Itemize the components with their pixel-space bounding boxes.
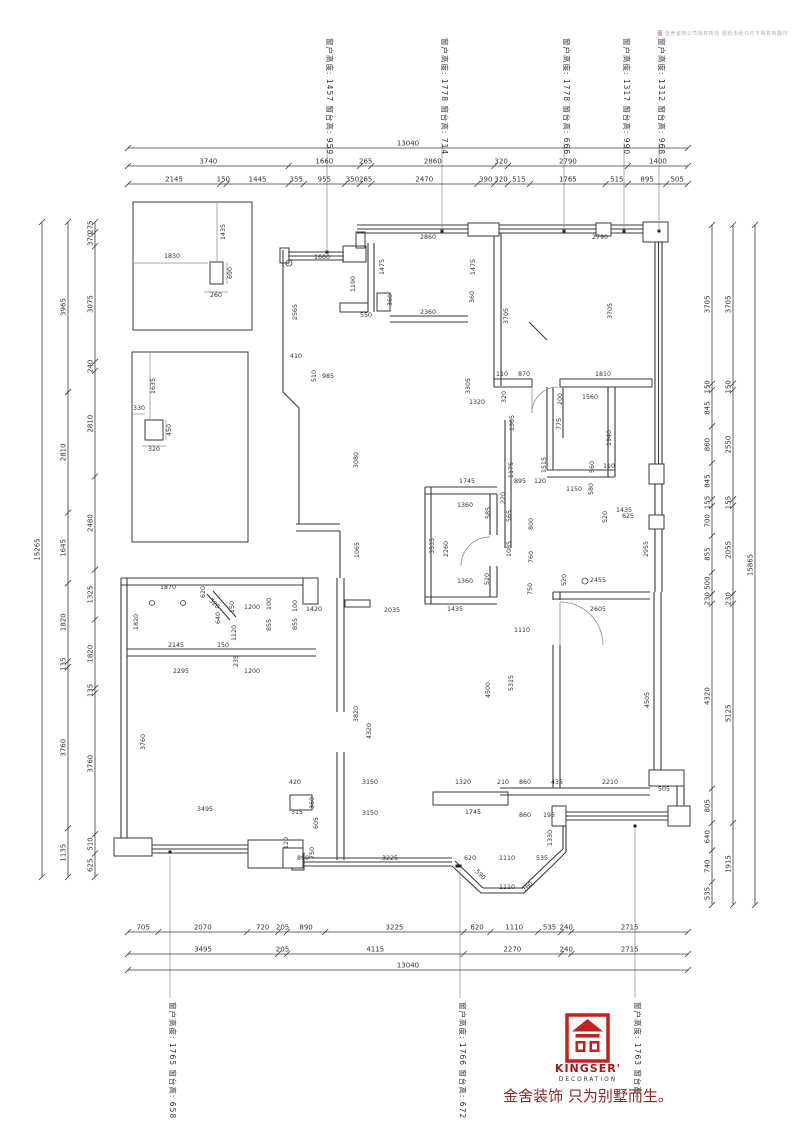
- dim-chain-top-row2: 37401660265286032027901400: [125, 158, 691, 170]
- interior-dim-label: 890: [297, 855, 309, 862]
- interior-dim-label: 1110: [499, 855, 515, 862]
- dim-label: 1820: [60, 613, 68, 631]
- wall-segment: [529, 322, 547, 340]
- wall-block: [210, 262, 223, 284]
- dim-label: 955: [318, 176, 331, 184]
- wall-block: [649, 770, 684, 786]
- interior-dim-label: 985: [322, 373, 334, 380]
- logo-slogan: 金舍装饰 只为别墅而生。: [503, 1087, 673, 1105]
- dim-label: 265: [359, 176, 372, 184]
- interior-dim-label: 620: [464, 855, 476, 862]
- dim-label: 740: [704, 860, 712, 873]
- door-swing-arc: [532, 387, 558, 413]
- interior-dim-label: 200: [557, 393, 564, 405]
- window-annotation: 窗户高度: 1317 窗台高: 990: [622, 38, 632, 155]
- interior-dim-label: 560: [589, 461, 596, 473]
- dim-label: 1915: [725, 855, 733, 873]
- dim-label: 355: [290, 176, 303, 184]
- interior-dim-label: 1320: [455, 779, 471, 786]
- dim-label: 2860: [424, 158, 442, 166]
- dim-label: 370: [87, 233, 95, 246]
- interior-dim-label: 870: [518, 371, 530, 378]
- interior-dim-label: 3080: [353, 452, 360, 468]
- dim-chain-left-inner: 2753703075240281024801325182013537605106…: [87, 219, 99, 880]
- wall-segment: [552, 852, 566, 866]
- dim-label: 3495: [194, 946, 212, 954]
- dim-label: 1660: [315, 158, 333, 166]
- dim-chain-right-inner: 3705150845860845155700855500230432080564…: [704, 222, 716, 908]
- interior-dim-label: 585: [485, 507, 492, 519]
- dim-label: 1820: [87, 645, 95, 663]
- interior-dim-label: 535: [536, 855, 548, 862]
- interior-dim-label: 2790: [592, 234, 608, 241]
- dim-label: 535: [543, 924, 556, 932]
- interior-dim-label: 1515: [541, 457, 548, 473]
- interior-dim-label: 800: [528, 518, 535, 530]
- interior-dim-label: 860: [519, 779, 531, 786]
- logo-seal-right-notch: [592, 1044, 597, 1050]
- dim-label: 860: [704, 438, 712, 451]
- dim-label: 4115: [366, 946, 384, 954]
- dim-label: 2145: [165, 176, 183, 184]
- interior-dim-label: 260: [210, 292, 222, 299]
- interior-dim-label: 3535: [429, 538, 436, 554]
- interior-dim-label: 1830: [164, 253, 180, 260]
- interior-dim-label: 2360: [420, 309, 436, 316]
- interior-dim-label: 450: [166, 424, 173, 436]
- interior-dim-label: 2565: [292, 304, 299, 320]
- wall-block: [560, 379, 652, 387]
- interior-dim-label: 1660: [314, 254, 330, 261]
- interior-dim-label: 1635: [150, 378, 157, 394]
- interior-dim-label: 1330: [547, 830, 554, 846]
- interior-dim-label: 2860: [420, 234, 436, 241]
- interior-dim-label: 1200: [244, 668, 260, 675]
- interior-dim-label: 110: [603, 463, 615, 470]
- dim-label: 625: [87, 859, 95, 872]
- interior-dim-label: 120: [534, 478, 546, 485]
- wall-block: [345, 600, 370, 607]
- dim-label: 1765: [559, 176, 577, 184]
- interior-dim-label: 625: [622, 513, 634, 520]
- dim-label: 240: [87, 360, 95, 373]
- interior-dim-label: 320: [501, 391, 508, 403]
- interior-dim-label: 855: [266, 619, 273, 631]
- interior-dim-label: 550: [360, 312, 372, 319]
- interior-dim-label: 360: [309, 797, 316, 809]
- interior-dim-label: 420: [289, 779, 301, 786]
- dim-label: 13040: [397, 140, 419, 148]
- dim-label: 265: [359, 158, 372, 166]
- interior-dim-label: 1435: [447, 606, 463, 613]
- interior-dim-label: 1305: [509, 415, 516, 431]
- window-annotation: 窗户高度: 1778 窗台高: 714: [440, 38, 450, 155]
- interior-dim-label: 520: [561, 574, 568, 586]
- logo-bar-icon: [576, 1034, 600, 1038]
- interior-dim-label: 1065: [354, 542, 361, 558]
- interior-dim-label: 750: [309, 847, 316, 859]
- dim-chain-bottom-total: 13040: [125, 962, 691, 974]
- wall-block: [340, 303, 368, 312]
- copyright-mark: 图: [657, 31, 663, 37]
- interior-dim-label: 1360: [457, 578, 473, 585]
- dim-label: 240: [560, 924, 573, 932]
- dim-label: 3760: [87, 755, 95, 773]
- dim-label: 230: [704, 592, 712, 605]
- interior-dim-label: 3705: [503, 308, 510, 324]
- interior-dim-label: 520: [484, 573, 491, 585]
- interior-dim-label: 435: [551, 779, 563, 786]
- interior-dim-label: 2295: [173, 668, 189, 675]
- dim-label: 505: [670, 176, 683, 184]
- interior-dim-label: 150: [217, 642, 229, 649]
- interior-dim-label: 1745: [465, 809, 481, 816]
- interior-dim-label: 860: [519, 812, 531, 819]
- interior-dim-label: 2455: [590, 577, 606, 584]
- interior-dim-label: 3820: [353, 706, 360, 722]
- interior-dim-label: 2035: [384, 607, 400, 614]
- dim-label: 890: [299, 924, 312, 932]
- dim-label: 2715: [621, 946, 639, 954]
- wall-block: [248, 840, 303, 868]
- interior-dim-label: 520: [207, 597, 220, 610]
- dim-label: 1135: [60, 844, 68, 862]
- dim-label: 2810: [60, 443, 68, 461]
- wall-block: [649, 464, 664, 484]
- dim-chain-bottom-row2: 3495205411522702402715: [125, 946, 691, 958]
- interior-dim-label: 4505: [644, 692, 651, 708]
- dim-label: 1445: [249, 176, 267, 184]
- interior-dim-label: 2210: [602, 779, 618, 786]
- dim-label: 205: [276, 924, 289, 932]
- interior-dim-label: 2145: [168, 642, 184, 649]
- interior-dim-label: 2605: [590, 606, 606, 613]
- dim-label: 845: [704, 474, 712, 487]
- interior-dim-label: 1175: [508, 462, 515, 478]
- dim-chain-right-mid: 37051502550155205523051251915: [725, 222, 737, 908]
- interior-dim-label: 640: [215, 612, 222, 624]
- interior-dim-label: 565: [506, 510, 513, 522]
- interior-dim-label: 1475: [379, 259, 386, 275]
- interior-dim-label: 100: [292, 600, 299, 612]
- dim-label: 2810: [87, 415, 95, 433]
- dim-label: 13040: [397, 962, 419, 970]
- dim-label: 320: [494, 176, 507, 184]
- logo-seal-left-notch: [578, 1044, 583, 1050]
- leader-dot: [169, 851, 172, 854]
- wall-block: [145, 420, 163, 440]
- wall-linework: [114, 143, 690, 998]
- interior-dim-label: 1560: [582, 394, 598, 401]
- dim-label: 2480: [87, 514, 95, 532]
- dim-label: 2715: [621, 924, 639, 932]
- floor-plan-drawing: 1304037401660265286032027901400214515014…: [0, 0, 800, 1143]
- dim-label: 845: [704, 401, 712, 414]
- dim-label: 510: [87, 837, 95, 850]
- interior-dim-label: 1150: [566, 486, 582, 493]
- dim-label: 3965: [60, 298, 68, 316]
- interior-dim-label: 1360: [457, 502, 473, 509]
- interior-dim-label: 3495: [197, 806, 213, 813]
- interior-dim-label: 1200: [244, 604, 260, 611]
- dim-label: 2055: [725, 541, 733, 559]
- interior-dim-label: 520: [602, 511, 609, 523]
- interior-dim-label: 775: [556, 418, 563, 430]
- interior-dim-label: 110: [496, 371, 508, 378]
- wall-block: [433, 792, 508, 805]
- wall-block: [303, 578, 318, 604]
- dim-label: 320: [494, 158, 507, 166]
- window-annotation: 窗户高度: 1765 窗台高: 658: [168, 1002, 178, 1119]
- interior-dim-label: 235: [233, 655, 240, 667]
- interior-dim-label: 1435: [616, 507, 632, 514]
- window-annotation: 窗户高度: 1778 窗台高: 666: [562, 38, 572, 155]
- interior-dim-label: 690: [227, 267, 234, 279]
- interior-dim-label: 760: [528, 551, 535, 563]
- interior-dim-label: 1820: [133, 614, 140, 630]
- dim-label: 3075: [87, 295, 95, 313]
- leader-dot: [634, 825, 637, 828]
- door-swing-arc: [461, 537, 490, 566]
- interior-dim-label: 3705: [607, 303, 614, 319]
- wall-segment: [283, 392, 299, 408]
- dim-label: 535: [704, 887, 712, 900]
- interior-dim-label: 330: [133, 405, 145, 412]
- interior-dim-label: 1120: [231, 625, 238, 641]
- interior-dim-label: 1190: [350, 276, 357, 292]
- dim-label: 500: [704, 576, 712, 589]
- wall-block: [668, 806, 690, 826]
- floor-plan-canvas: 1304037401660265286032027901400214515014…: [0, 0, 800, 1143]
- interior-dim-label: 3150: [362, 810, 378, 817]
- wall-block: [468, 223, 499, 236]
- leader-dot: [459, 865, 462, 868]
- dim-label: 2790: [559, 158, 577, 166]
- window-annotation: 窗户高度: 1312 窗台高: 968: [657, 38, 667, 155]
- wall-block: [114, 838, 152, 856]
- interior-dim-label: 1745: [459, 478, 475, 485]
- interior-dim-label: 2955: [643, 541, 650, 557]
- dim-label: 640: [704, 830, 712, 843]
- dim-label: 3225: [386, 924, 404, 932]
- interior-dim-label: 1940: [606, 430, 613, 446]
- logo-subtext: DECORATION: [559, 1077, 617, 1083]
- dim-label: 350: [346, 176, 359, 184]
- interior-dim-label: 590: [473, 868, 486, 881]
- dim-label: 2270: [503, 946, 521, 954]
- dim-label: 5125: [725, 704, 733, 722]
- interior-dim-label: 5315: [508, 675, 515, 691]
- dim-chain-bottom-row1: 7052070720205890322562011105352402715: [125, 924, 691, 936]
- interior-dim-label: 855: [292, 618, 299, 630]
- dim-label: 2470: [415, 176, 433, 184]
- dim-label: 1110: [505, 924, 523, 932]
- interior-dim-label: 410: [290, 353, 302, 360]
- interior-dim-label: 220: [500, 492, 507, 504]
- fixture-circle: [150, 601, 155, 606]
- dim-chain-top-row3: 2145150144535595535026524703903205151765…: [125, 176, 691, 188]
- wall-block: [649, 515, 664, 529]
- interior-dim-label: 210: [497, 779, 509, 786]
- interior-dim-label: 1110: [514, 627, 530, 634]
- dim-chain-left-total: 15265: [34, 219, 46, 880]
- interior-dim-label: 605: [313, 817, 320, 829]
- interior-dim-label: 1320: [469, 399, 485, 406]
- interior-dim-label: 2260: [443, 541, 450, 557]
- interior-dim-label: 1110: [499, 884, 515, 891]
- dim-label: 3705: [704, 295, 712, 313]
- dimension-layer: 1304037401660265286032027901400214515014…: [34, 38, 759, 1119]
- interior-dim-label: 315: [291, 809, 303, 816]
- logo-wordmark: KINGSER': [555, 1062, 621, 1075]
- interior-dim-label: 195: [543, 812, 555, 819]
- dim-label: 3705: [725, 295, 733, 313]
- wall-block: [133, 202, 252, 330]
- dim-label: 515: [512, 176, 525, 184]
- fixture-circle: [582, 578, 588, 584]
- interior-dim-label: 4500: [485, 682, 492, 698]
- dim-label: 275: [87, 220, 95, 233]
- wall-block: [494, 379, 532, 387]
- interior-dim-label: 320: [148, 446, 160, 453]
- interior-dim-label: 510: [311, 370, 318, 382]
- dim-label: 855: [704, 547, 712, 560]
- kingser-logo: KINGSER' DECORATION 金舍装饰 只为别墅而生。: [503, 1015, 673, 1105]
- interior-dim-label: 1420: [306, 606, 322, 613]
- dim-chain-left-mid: 396528101645182013537601135: [60, 219, 72, 880]
- copyright-note: 图金舍装饰公司版权所有·图纸未经许可不得复制翻印: [657, 30, 788, 37]
- interior-dim-label: 1810: [595, 371, 611, 378]
- dim-label: 205: [276, 946, 289, 954]
- dim-label: 720: [256, 924, 269, 932]
- dim-label: 3760: [60, 739, 68, 757]
- dim-label: 805: [704, 799, 712, 812]
- leader-dot: [456, 865, 459, 868]
- fixture-circle: [181, 601, 186, 606]
- interior-dim-label: 1870: [160, 584, 176, 591]
- interior-dim-label: 620: [200, 586, 207, 598]
- dim-label: 230: [725, 592, 733, 605]
- dim-label: 15265: [34, 538, 42, 560]
- interior-dim-label: 4320: [366, 723, 373, 739]
- dim-chain-right-total: 15865: [747, 222, 759, 908]
- dim-label: 1645: [60, 539, 68, 557]
- interior-dim-label: 750: [527, 583, 534, 595]
- dim-label: 1400: [649, 158, 667, 166]
- interior-dim-label: 1475: [470, 259, 477, 275]
- dim-label: 620: [470, 924, 483, 932]
- window-annotation: 窗户高度: 1766 窗台高: 672: [458, 1002, 468, 1119]
- interior-dim-label: 3150: [362, 779, 378, 786]
- dim-label: 2070: [194, 924, 212, 932]
- interior-dim-label: 360: [387, 294, 394, 306]
- wall-segment: [550, 849, 563, 861]
- dim-label: 515: [610, 176, 623, 184]
- interior-dim-label: 3305: [465, 378, 472, 394]
- window-annotation: 窗户高度: 1457 窗台高: 959: [325, 38, 335, 155]
- dim-label: 2550: [725, 436, 733, 454]
- interior-dim-label: 150: [229, 601, 236, 613]
- interior-dim-label: 3225: [382, 855, 398, 862]
- interior-dim-label: 760: [521, 880, 534, 893]
- interior-dim-label: 1435: [220, 224, 227, 240]
- interior-dim-label: 100: [266, 598, 273, 610]
- dim-label: 705: [136, 924, 149, 932]
- interior-dim-label: 505: [658, 786, 670, 793]
- dim-label: 1325: [87, 586, 95, 604]
- dim-label: 4320: [704, 687, 712, 705]
- interior-dim-label: 120: [283, 837, 290, 849]
- dim-label: 3740: [199, 158, 217, 166]
- dim-chain-top-total: 13040: [125, 140, 691, 152]
- interior-dim-label: 360: [469, 291, 476, 303]
- copyright-text: 金舍装饰公司版权所有·图纸未经许可不得复制翻印: [665, 31, 788, 37]
- wall-block: [643, 222, 668, 242]
- dim-label: 700: [704, 514, 712, 527]
- dim-label: 240: [560, 946, 573, 954]
- dim-label: 390: [479, 176, 492, 184]
- dim-label: 895: [640, 176, 653, 184]
- interior-dim-label: 580: [588, 483, 595, 495]
- window-annotation: 窗户高度: 1763 窗台高:: [633, 1002, 643, 1098]
- interior-dim-label: 895: [514, 478, 526, 485]
- dim-label: 15865: [747, 554, 755, 576]
- interior-dim-label: 1085: [506, 541, 513, 557]
- interior-dim-label: 3760: [140, 734, 147, 750]
